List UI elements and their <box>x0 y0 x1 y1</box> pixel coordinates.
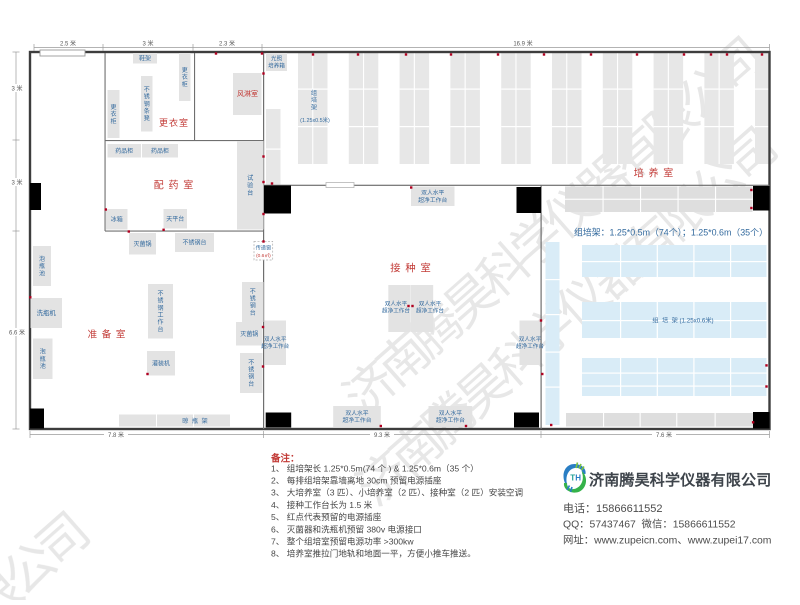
svg-text:衣: 衣 <box>182 73 188 81</box>
svg-text:2.5 米: 2.5 米 <box>60 40 76 48</box>
svg-text:台: 台 <box>248 380 254 388</box>
svg-text:锈: 锈 <box>157 297 163 305</box>
svg-text:QQ：57437467 微信：15866611552: QQ：57437467 微信：15866611552 <box>563 518 736 531</box>
svg-text:超净工作台: 超净工作台 <box>418 196 447 204</box>
svg-text:双人水平: 双人水平 <box>439 409 462 417</box>
svg-text:锈: 锈 <box>144 93 150 101</box>
svg-text:锈: 锈 <box>248 366 254 374</box>
svg-text:钢: 钢 <box>144 100 150 108</box>
svg-text:瓶: 瓶 <box>39 262 45 270</box>
svg-text:池: 池 <box>40 362 46 370</box>
svg-text:3 米: 3 米 <box>142 40 153 48</box>
svg-text:洗瓶机: 洗瓶机 <box>37 308 57 317</box>
svg-text:16.9 米: 16.9 米 <box>513 40 532 48</box>
svg-text:冰箱: 冰箱 <box>111 215 123 223</box>
svg-text:验: 验 <box>247 181 254 189</box>
svg-text:光照: 光照 <box>271 54 283 62</box>
svg-text:更衣室: 更衣室 <box>159 117 189 128</box>
svg-text:台: 台 <box>247 189 253 197</box>
svg-text:池: 池 <box>39 269 45 277</box>
svg-text:不: 不 <box>250 288 256 295</box>
svg-text:超净工作台: 超净工作台 <box>343 416 372 424</box>
svg-text:6.6 米: 6.6 米 <box>9 329 25 337</box>
svg-text:天平台: 天平台 <box>166 215 184 223</box>
svg-text:风淋室: 风淋室 <box>237 89 258 98</box>
svg-text:钢: 钢 <box>157 304 163 312</box>
svg-text:超净工作台: 超净工作台 <box>261 342 289 350</box>
svg-text:瓶: 瓶 <box>40 355 46 363</box>
svg-text:7.6 米: 7.6 米 <box>656 431 672 439</box>
svg-text:灭菌锅: 灭菌锅 <box>133 240 151 248</box>
svg-text:衣: 衣 <box>110 110 116 118</box>
svg-text:更: 更 <box>182 67 188 74</box>
svg-text:晾 瓶 架: 晾 瓶 架 <box>182 417 207 425</box>
svg-text:工: 工 <box>157 312 163 319</box>
svg-text:配 药 室: 配 药 室 <box>154 179 195 192</box>
svg-text:接 种 室: 接 种 室 <box>390 262 432 275</box>
svg-text:泡: 泡 <box>40 348 46 356</box>
svg-text:双人水平: 双人水平 <box>264 335 287 343</box>
svg-text:8、 培养室推拉门地轨和地面一平，方便小推车推送。: 8、 培养室推拉门地轨和地面一平，方便小推车推送。 <box>271 548 476 559</box>
svg-text:不: 不 <box>157 290 163 297</box>
svg-text:培养箱: 培养箱 <box>268 61 285 69</box>
svg-text:6、 灭菌器和洗瓶机预留 380v 电源接口: 6、 灭菌器和洗瓶机预留 380v 电源接口 <box>271 523 422 534</box>
svg-text:网址：www.zupeicn.com、www.zupei17: 网址：www.zupeicn.com、www.zupei17.com <box>563 534 771 547</box>
svg-text:不: 不 <box>144 86 150 93</box>
svg-text:组: 组 <box>311 89 317 97</box>
svg-text:4、 接种工作台长为 1.5 米: 4、 接种工作台长为 1.5 米 <box>271 499 373 510</box>
svg-text:传递窗: 传递窗 <box>256 244 272 252</box>
svg-text:不锈钢台: 不锈钢台 <box>182 239 206 247</box>
svg-text:台: 台 <box>250 309 256 317</box>
svg-text:2.3 米: 2.3 米 <box>219 40 235 48</box>
svg-text:药品柜: 药品柜 <box>115 147 133 155</box>
svg-text:H: H <box>575 474 581 483</box>
svg-text:(0.6㎡): (0.6㎡) <box>256 252 271 259</box>
svg-text:架: 架 <box>311 103 317 111</box>
svg-text:(1.25x0.5米): (1.25x0.5米) <box>300 116 330 124</box>
svg-text:超净工作台: 超净工作台 <box>416 307 444 315</box>
svg-text:作: 作 <box>157 318 163 326</box>
svg-text:双人水平: 双人水平 <box>519 335 542 343</box>
svg-text:泡: 泡 <box>39 255 45 263</box>
svg-text:培 养 室: 培 养 室 <box>634 167 675 180</box>
svg-text:药品柜: 药品柜 <box>151 147 169 155</box>
svg-text:超净工作台: 超净工作台 <box>436 416 465 424</box>
svg-text:钢: 钢 <box>250 302 256 310</box>
svg-text:超净工作台: 超净工作台 <box>382 307 410 315</box>
svg-text:不: 不 <box>248 359 254 366</box>
svg-text:3 米: 3 米 <box>11 179 22 187</box>
svg-text:双人水平: 双人水平 <box>345 409 368 417</box>
svg-text:2、 每排组培架靠墙离地 30cm 预留电源插座: 2、 每排组培架靠墙离地 30cm 预留电源插座 <box>271 475 442 486</box>
svg-text:3、 大培养室（3 匹）、小培养室（2 匹）、接种室（2 匹: 3、 大培养室（3 匹）、小培养室（2 匹）、接种室（2 匹）安装空调 <box>271 487 523 498</box>
svg-text:7、 整个组培室预留电源功率 >300kw: 7、 整个组培室预留电源功率 >300kw <box>271 536 414 547</box>
svg-text:试: 试 <box>247 174 253 182</box>
svg-text:凳: 凳 <box>144 114 150 122</box>
svg-text:双人水平: 双人水平 <box>385 300 408 308</box>
svg-text:台: 台 <box>157 325 163 333</box>
svg-text:灌装机: 灌装机 <box>152 359 170 367</box>
svg-text:更: 更 <box>110 104 116 111</box>
svg-text:条: 条 <box>144 107 150 115</box>
svg-text:1、 组培架长 1.25*0.5m(74 个 ) & 1.2: 1、 组培架长 1.25*0.5m(74 个 ) & 1.25*0.6m（35 … <box>271 462 479 473</box>
svg-text:钢: 钢 <box>248 373 254 381</box>
svg-text:5、 红点代表预留的电源插座: 5、 红点代表预留的电源插座 <box>271 511 382 522</box>
svg-text:电话：15866611552: 电话：15866611552 <box>563 502 662 515</box>
svg-text:9.3 米: 9.3 米 <box>374 431 390 439</box>
svg-text:7.8 米: 7.8 米 <box>108 431 124 439</box>
svg-text:鞋架: 鞋架 <box>139 54 151 62</box>
svg-text:培: 培 <box>311 96 317 104</box>
svg-text:柜: 柜 <box>110 117 116 125</box>
svg-text:3 米: 3 米 <box>11 85 22 93</box>
svg-text:柜: 柜 <box>182 80 188 88</box>
svg-text:准 备 室: 准 备 室 <box>88 329 127 341</box>
svg-text:超净工作台: 超净工作台 <box>516 342 544 350</box>
svg-text:双人水平: 双人水平 <box>421 189 444 197</box>
svg-text:灭菌锅: 灭菌锅 <box>240 330 258 338</box>
svg-text:锈: 锈 <box>250 295 256 303</box>
svg-text:济南腾昊科学仪器有限公司: 济南腾昊科学仪器有限公司 <box>589 471 771 489</box>
svg-text:双人水平: 双人水平 <box>419 300 442 308</box>
svg-text:组培架：1.25*0.5m（74个）；1.25*0.6m（3: 组培架：1.25*0.5m（74个）；1.25*0.6m（35个） <box>574 227 768 238</box>
svg-text:组 培 架 (1.25x0.6米): 组 培 架 (1.25x0.6米) <box>652 317 713 325</box>
